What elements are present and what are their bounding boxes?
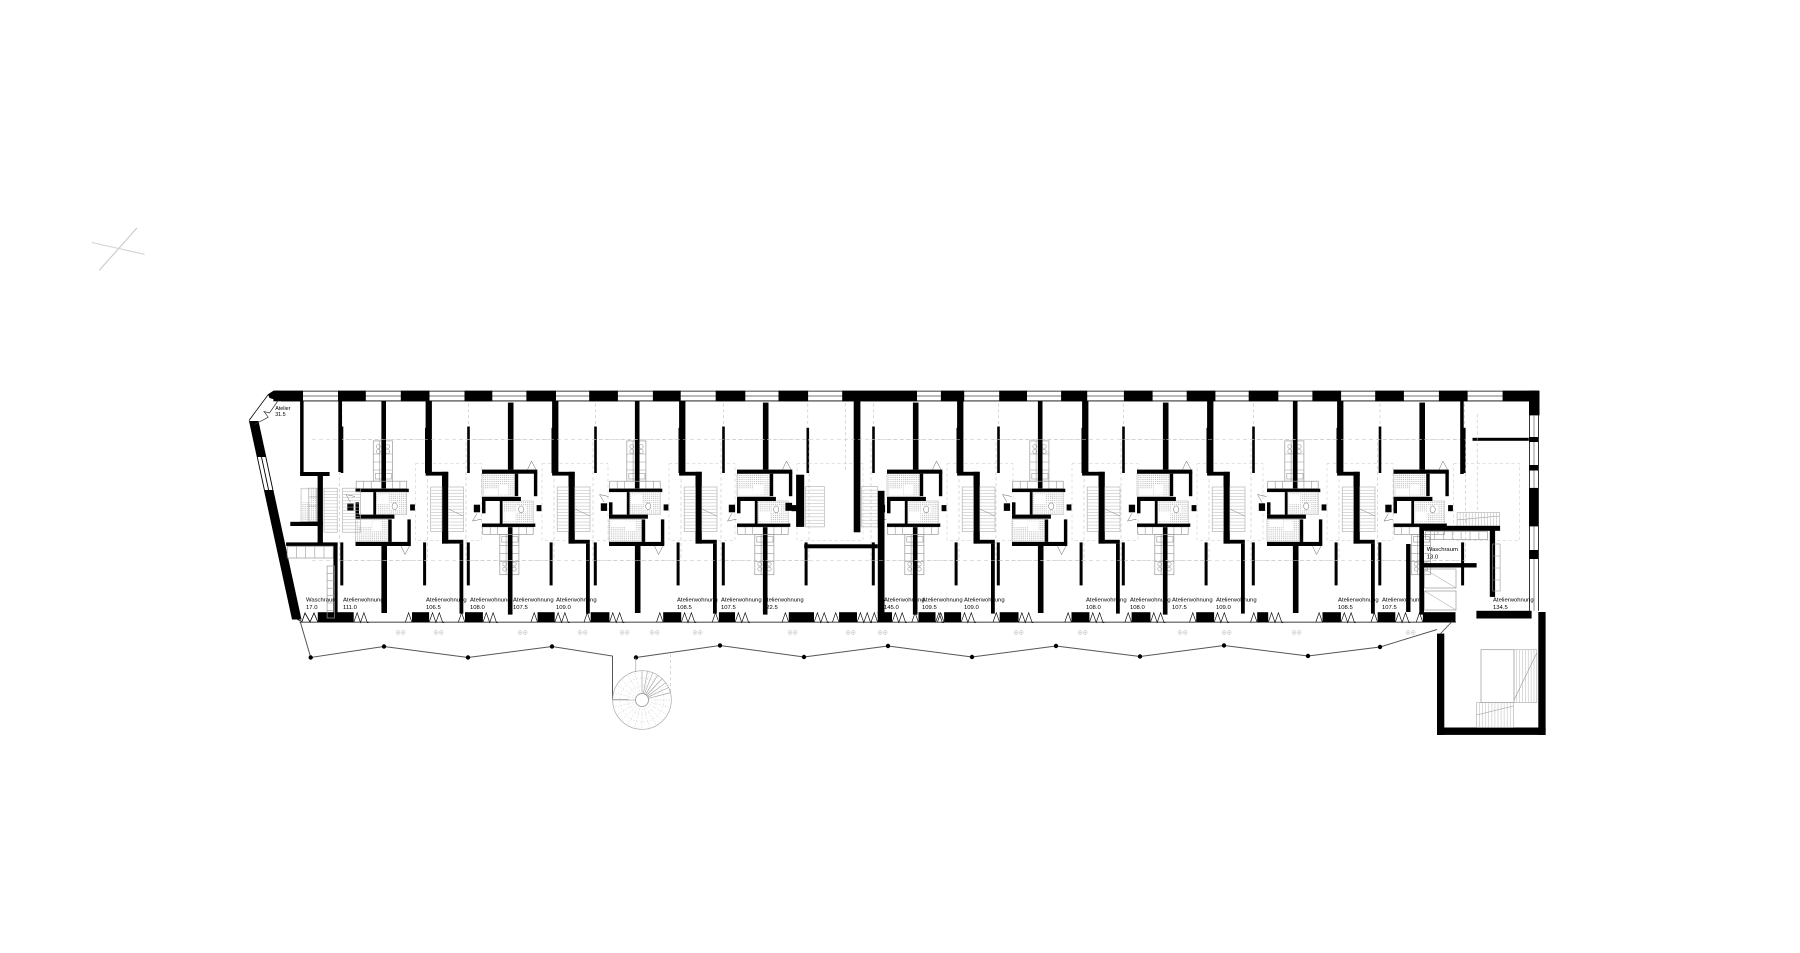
svg-text:111.0: 111.0 [343,605,358,611]
svg-text:108.0: 108.0 [1086,605,1101,611]
svg-text:Atelierwohnung: Atelierwohnung [1338,598,1379,604]
svg-text:107.5: 107.5 [721,605,736,611]
svg-text:Atelier: Atelier [275,406,290,412]
svg-text:Atelierwohnung: Atelierwohnung [1216,598,1257,604]
svg-text:Atelierwohnung: Atelierwohnung [1130,598,1171,604]
svg-text:Atelierwohnung: Atelierwohnung [677,598,718,604]
svg-text:108.0: 108.0 [470,605,485,611]
svg-text:13.0: 13.0 [1427,555,1439,561]
svg-text:122.5: 122.5 [763,605,778,611]
svg-text:Atelierwohnung: Atelierwohnung [884,598,925,604]
svg-text:Atelierwohnung: Atelierwohnung [426,598,467,604]
svg-text:Atelierwohnung: Atelierwohnung [513,598,554,604]
svg-text:134.5: 134.5 [1493,605,1508,611]
svg-text:107.5: 107.5 [1382,605,1397,611]
svg-text:Atelierwohnung: Atelierwohnung [922,598,963,604]
svg-text:Atelierwohnung: Atelierwohnung [556,598,597,604]
svg-text:106.5: 106.5 [426,605,441,611]
svg-text:Atelierwohnung: Atelierwohnung [1493,598,1534,604]
svg-text:108.5: 108.5 [677,605,692,611]
svg-text:Atelierwohnung: Atelierwohnung [1172,598,1213,604]
svg-text:109.0: 109.0 [556,605,571,611]
svg-text:Atelierwohnung: Atelierwohnung [964,598,1005,604]
svg-text:Waschraum: Waschraum [1427,547,1458,553]
svg-text:31.5: 31.5 [275,412,286,418]
svg-text:Atelierwohnung: Atelierwohnung [1086,598,1127,604]
svg-text:17.0: 17.0 [306,605,318,611]
svg-text:Atelierwohnung: Atelierwohnung [1382,598,1423,604]
svg-text:Atelierwohnung: Atelierwohnung [763,598,804,604]
svg-text:108.5: 108.5 [1338,605,1353,611]
svg-text:107.5: 107.5 [1172,605,1187,611]
svg-text:145.0: 145.0 [884,605,899,611]
svg-text:109.0: 109.0 [964,605,979,611]
svg-text:109.5: 109.5 [922,605,937,611]
svg-text:Atelierwohnung: Atelierwohnung [470,598,511,604]
svg-text:Atelierwohnung: Atelierwohnung [721,598,762,604]
svg-text:Waschraum: Waschraum [306,598,337,604]
svg-text:Atelierwohnung: Atelierwohnung [343,598,384,604]
svg-text:107.5: 107.5 [513,605,528,611]
svg-text:109.0: 109.0 [1216,605,1231,611]
svg-text:108.0: 108.0 [1130,605,1145,611]
